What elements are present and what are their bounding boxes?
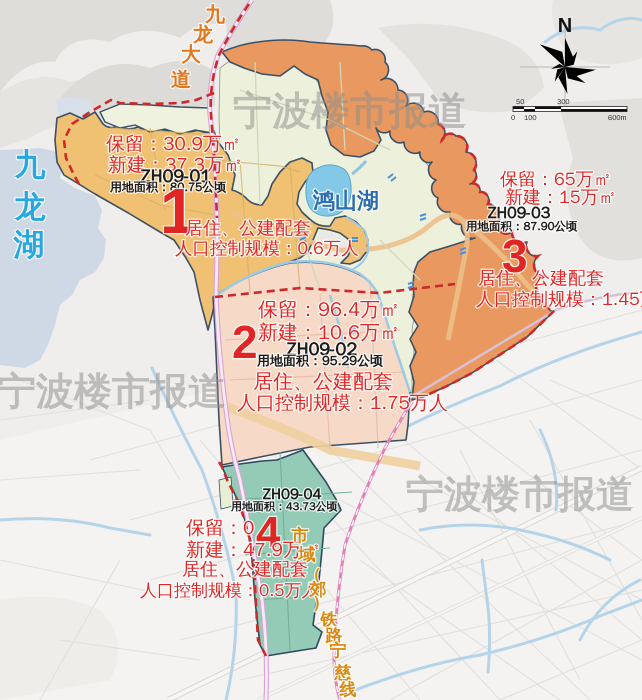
- svg-text:保留：0: 保留：0: [185, 516, 254, 540]
- svg-text:0: 0: [511, 114, 515, 123]
- svg-text:宁: 宁: [330, 641, 347, 662]
- svg-text:人口控制规模：0.6万人: 人口控制规模：0.6万人: [175, 238, 359, 260]
- svg-text:300: 300: [557, 98, 570, 107]
- svg-text:50: 50: [516, 98, 524, 107]
- svg-text:2: 2: [232, 316, 258, 368]
- svg-text:居住、公建配套: 居住、公建配套: [478, 268, 604, 290]
- svg-text:线: 线: [339, 680, 357, 700]
- svg-text:人口控制规模：1.45万人: 人口控制规模：1.45万人: [476, 289, 642, 311]
- svg-text:宁波楼市报道: 宁波楼市报道: [406, 471, 634, 519]
- svg-text:九: 九: [14, 146, 46, 185]
- svg-text:100: 100: [524, 114, 537, 123]
- svg-text:N: N: [558, 15, 572, 37]
- svg-text:大: 大: [181, 42, 202, 67]
- svg-text:保留：96.4万㎡: 保留：96.4万㎡: [257, 297, 400, 322]
- svg-text:用地面积：95.29公顷: 用地面积：95.29公顷: [256, 352, 384, 369]
- svg-text:龙: 龙: [14, 188, 47, 227]
- svg-text:人口控制规模：0.5万人: 人口控制规模：0.5万人: [140, 581, 318, 602]
- svg-text:道: 道: [171, 67, 191, 92]
- svg-text:宁波楼市报道: 宁波楼市报道: [0, 368, 226, 416]
- svg-text:域: 域: [298, 545, 316, 566]
- svg-text:市: 市: [291, 526, 309, 547]
- svg-text:居住、公建配套: 居住、公建配套: [185, 218, 311, 240]
- svg-text:湖: 湖: [13, 226, 45, 265]
- svg-text:居住、公建配套: 居住、公建配套: [182, 559, 308, 581]
- svg-text:人口控制规模：1.75万人: 人口控制规模：1.75万人: [237, 391, 448, 415]
- svg-text:鸿山湖: 鸿山湖: [312, 187, 379, 215]
- svg-text:宁波楼市报道: 宁波楼市报道: [233, 86, 467, 136]
- svg-text:600m: 600m: [608, 114, 627, 123]
- svg-text:用地面积：43.73公顷: 用地面积：43.73公顷: [230, 500, 339, 514]
